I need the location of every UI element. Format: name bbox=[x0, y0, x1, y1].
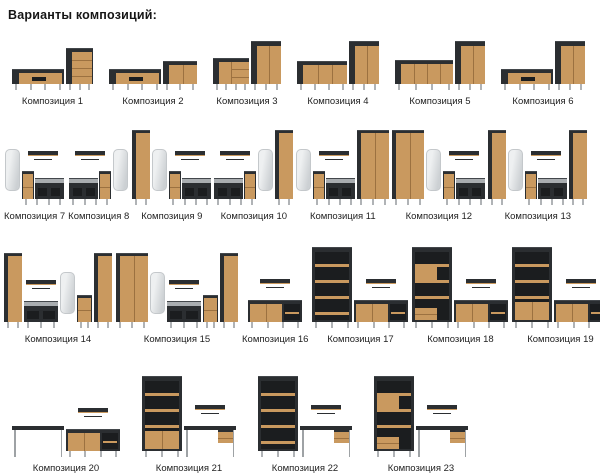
piece-dresser bbox=[66, 48, 93, 90]
furniture-legs bbox=[203, 322, 218, 328]
furniture-legs bbox=[349, 84, 379, 90]
piece-stack bbox=[214, 151, 256, 205]
piece-wall-shelf bbox=[449, 151, 479, 160]
composition-card: Композиция 11 bbox=[296, 117, 389, 222]
composition-preview bbox=[142, 357, 236, 457]
piece-sideboard-4door bbox=[395, 60, 453, 90]
piece-mirror bbox=[296, 149, 311, 191]
piece-wall-shelf bbox=[566, 279, 596, 288]
piece-hall-bench bbox=[313, 172, 355, 205]
furniture-legs bbox=[132, 199, 150, 205]
piece-wall-shelf bbox=[75, 151, 105, 160]
furniture-legs bbox=[258, 451, 298, 457]
furniture-legs bbox=[374, 451, 414, 457]
composition-label: Композиция 7 bbox=[4, 211, 65, 222]
composition-label: Композиция 14 bbox=[25, 334, 91, 345]
composition-card: Композиция 18 bbox=[412, 234, 508, 345]
composition-card: Композиция 15 bbox=[116, 234, 238, 345]
furniture-legs bbox=[116, 322, 148, 328]
composition-label: Композиция 3 bbox=[216, 96, 277, 107]
furniture-legs bbox=[354, 322, 408, 328]
piece-bookshelf-doors bbox=[142, 376, 182, 457]
piece-commode bbox=[213, 58, 249, 90]
composition-label: Композиция 12 bbox=[406, 211, 472, 222]
composition-preview bbox=[214, 117, 293, 205]
composition-card: Композиция 16 bbox=[242, 234, 308, 345]
piece-wall-shelf bbox=[366, 279, 396, 288]
piece-hall-bench bbox=[525, 172, 567, 205]
composition-card: Композиция 14 bbox=[4, 234, 112, 345]
composition-preview bbox=[312, 234, 408, 328]
composition-preview bbox=[116, 234, 238, 328]
composition-label: Композиция 4 bbox=[307, 96, 368, 107]
composition-label: Композиция 5 bbox=[409, 96, 470, 107]
composition-preview bbox=[374, 357, 468, 457]
composition-label: Композиция 17 bbox=[327, 334, 393, 345]
piece-stack bbox=[24, 280, 58, 328]
piece-sideboard-open bbox=[66, 429, 120, 457]
composition-card: Композиция 5 bbox=[395, 28, 485, 107]
composition-preview bbox=[12, 357, 120, 457]
composition-label: Композиция 20 bbox=[33, 463, 99, 474]
composition-card: Композиция 23 bbox=[374, 357, 468, 474]
furniture-legs bbox=[443, 199, 485, 205]
furniture-legs bbox=[512, 322, 552, 328]
composition-label: Композиция 16 bbox=[242, 334, 308, 345]
piece-hall-bench bbox=[69, 172, 111, 205]
piece-drawer-unit bbox=[203, 295, 218, 328]
composition-label: Композиция 21 bbox=[156, 463, 222, 474]
piece-stack bbox=[313, 151, 355, 205]
compositions-grid: Композиция 1Композиция 2Композиция 3Комп… bbox=[0, 22, 600, 474]
piece-mirror bbox=[60, 272, 75, 314]
furniture-legs bbox=[312, 322, 352, 328]
piece-wall-shelf bbox=[260, 279, 290, 288]
piece-wall-shelf bbox=[78, 408, 108, 417]
piece-sideboard-open bbox=[554, 300, 600, 328]
piece-stack bbox=[300, 405, 352, 457]
furniture-legs bbox=[77, 322, 92, 328]
furniture-legs bbox=[455, 84, 485, 90]
composition-preview bbox=[392, 117, 485, 205]
furniture-legs bbox=[275, 199, 293, 205]
piece-wall-shelf bbox=[195, 405, 225, 414]
furniture-legs bbox=[454, 322, 508, 328]
furniture-legs bbox=[248, 322, 302, 328]
piece-mirror bbox=[150, 272, 165, 314]
furniture-legs bbox=[395, 84, 453, 90]
piece-hall-bench bbox=[169, 172, 211, 205]
furniture-legs bbox=[22, 199, 64, 205]
furniture-legs bbox=[412, 322, 452, 328]
piece-desk-drawers bbox=[416, 426, 468, 457]
piece-sideboard-2door bbox=[163, 61, 197, 90]
piece-sideboard-open bbox=[454, 300, 508, 328]
composition-label: Композиция 18 bbox=[427, 334, 493, 345]
furniture-legs bbox=[525, 199, 567, 205]
piece-stack bbox=[169, 151, 211, 205]
composition-label: Композиция 1 bbox=[22, 96, 83, 107]
composition-card: Композиция 7 bbox=[4, 117, 65, 222]
piece-sideboard-open bbox=[354, 300, 408, 328]
composition-label: Композиция 9 bbox=[141, 211, 202, 222]
furniture-legs bbox=[24, 322, 58, 328]
composition-label: Композиция 8 bbox=[68, 211, 129, 222]
composition-preview bbox=[488, 117, 587, 205]
composition-preview bbox=[412, 234, 508, 328]
composition-preview bbox=[297, 28, 379, 90]
piece-sideboard-open bbox=[248, 300, 302, 328]
composition-label: Композиция 15 bbox=[144, 334, 210, 345]
piece-cabinet bbox=[455, 41, 485, 90]
piece-wall-shelf bbox=[169, 280, 199, 289]
furniture-legs bbox=[213, 84, 249, 90]
piece-tv-stand bbox=[12, 69, 64, 90]
piece-mirror bbox=[5, 149, 20, 191]
piece-wall-shelf bbox=[466, 279, 496, 288]
composition-preview bbox=[132, 117, 211, 205]
piece-wardrobe-2door bbox=[392, 130, 424, 205]
piece-wardrobe-narrow bbox=[569, 130, 587, 205]
piece-hall-bench bbox=[22, 172, 64, 205]
piece-wardrobe-narrow bbox=[275, 130, 293, 205]
compositions-row-2: Композиция 7Композиция 8Композиция 9Комп… bbox=[0, 107, 600, 222]
piece-sideboard-3door bbox=[297, 61, 347, 90]
composition-card: Композиция 21 bbox=[142, 357, 236, 474]
furniture-legs bbox=[66, 451, 120, 457]
composition-label: Композиция 19 bbox=[527, 334, 593, 345]
piece-wall-shelf bbox=[28, 151, 58, 160]
furniture-legs bbox=[357, 199, 389, 205]
composition-card: Композиция 6 bbox=[501, 28, 585, 107]
piece-cabinet bbox=[555, 41, 585, 90]
piece-stack bbox=[525, 151, 567, 205]
composition-preview bbox=[248, 234, 302, 328]
piece-bench bbox=[24, 301, 58, 328]
piece-bench bbox=[167, 301, 201, 328]
piece-wall-shelf bbox=[531, 151, 561, 160]
piece-bookshelf-mixed bbox=[374, 376, 414, 457]
compositions-row-4: Композиция 20Композиция 21Композиция 22К… bbox=[0, 345, 600, 474]
composition-card: Композиция 10 bbox=[214, 117, 293, 222]
furniture-legs bbox=[214, 199, 256, 205]
piece-stack bbox=[248, 279, 302, 328]
piece-desk-drawers bbox=[184, 426, 236, 457]
furniture-legs bbox=[569, 199, 587, 205]
piece-stack bbox=[22, 151, 64, 205]
composition-card: Композиция 4 bbox=[297, 28, 379, 107]
piece-wall-shelf bbox=[427, 405, 457, 414]
furniture-legs bbox=[297, 84, 347, 90]
composition-card: Композиция 9 bbox=[132, 117, 211, 222]
piece-hall-bench bbox=[443, 172, 485, 205]
composition-preview bbox=[69, 117, 128, 205]
piece-wall-shelf bbox=[220, 151, 250, 160]
piece-wardrobe-2door bbox=[357, 130, 389, 205]
piece-wall-shelf bbox=[26, 280, 56, 289]
piece-stack bbox=[454, 279, 508, 328]
furniture-legs bbox=[167, 322, 201, 328]
piece-wall-shelf bbox=[311, 405, 341, 414]
composition-label: Композиция 2 bbox=[122, 96, 183, 107]
furniture-legs bbox=[555, 84, 585, 90]
piece-mirror bbox=[508, 149, 523, 191]
piece-cabinet bbox=[251, 41, 281, 90]
composition-card: Композиция 8 bbox=[68, 117, 129, 222]
composition-preview bbox=[4, 234, 112, 328]
composition-preview bbox=[395, 28, 485, 90]
piece-wardrobe-narrow bbox=[220, 253, 238, 328]
composition-preview bbox=[501, 28, 585, 90]
piece-wall-shelf bbox=[175, 151, 205, 160]
furniture-legs bbox=[4, 322, 22, 328]
composition-card: Композиция 22 bbox=[258, 357, 352, 474]
furniture-legs bbox=[69, 199, 111, 205]
composition-label: Композиция 13 bbox=[505, 211, 571, 222]
furniture-legs bbox=[66, 84, 93, 90]
piece-hall-bench bbox=[214, 172, 256, 205]
compositions-row-1: Композиция 1Композиция 2Композиция 3Комп… bbox=[0, 22, 600, 107]
furniture-legs bbox=[169, 199, 211, 205]
piece-stack bbox=[416, 405, 468, 457]
piece-mirror bbox=[113, 149, 128, 191]
piece-bookshelf-doors bbox=[512, 247, 552, 328]
furniture-legs bbox=[163, 84, 197, 90]
composition-preview bbox=[5, 117, 64, 205]
piece-wardrobe-narrow bbox=[132, 130, 150, 205]
piece-tv-stand bbox=[501, 69, 553, 90]
piece-stack bbox=[69, 151, 111, 205]
composition-label: Композиция 22 bbox=[272, 463, 338, 474]
piece-stack bbox=[443, 151, 485, 205]
composition-card: Композиция 17 bbox=[312, 234, 408, 345]
piece-desk bbox=[12, 426, 64, 457]
composition-card: Композиция 13 bbox=[488, 117, 587, 222]
composition-preview bbox=[109, 28, 197, 90]
furniture-legs bbox=[220, 322, 238, 328]
composition-preview bbox=[296, 117, 389, 205]
piece-wardrobe-narrow bbox=[4, 253, 22, 328]
composition-card: Композиция 2 bbox=[109, 28, 197, 107]
piece-bookshelf-mixed bbox=[412, 247, 452, 328]
piece-tv-stand bbox=[109, 69, 161, 90]
furniture-legs bbox=[392, 199, 424, 205]
piece-bookshelf-open bbox=[258, 376, 298, 457]
furniture-legs bbox=[501, 84, 553, 90]
piece-mirror bbox=[152, 149, 167, 191]
piece-wardrobe-narrow bbox=[94, 253, 112, 328]
piece-wall-shelf bbox=[319, 151, 349, 160]
composition-card: Композиция 12 bbox=[392, 117, 485, 222]
furniture-legs bbox=[109, 84, 161, 90]
piece-mirror bbox=[426, 149, 441, 191]
furniture-legs bbox=[313, 199, 355, 205]
piece-stack bbox=[184, 405, 236, 457]
composition-card: Композиция 1 bbox=[12, 28, 93, 107]
composition-preview bbox=[512, 234, 600, 328]
piece-stack bbox=[554, 279, 600, 328]
composition-label: Композиция 10 bbox=[221, 211, 287, 222]
furniture-legs bbox=[142, 451, 182, 457]
furniture-legs bbox=[554, 322, 600, 328]
composition-preview bbox=[258, 357, 352, 457]
piece-bookshelf-open bbox=[312, 247, 352, 328]
piece-stack bbox=[167, 280, 201, 328]
furniture-legs bbox=[94, 322, 112, 328]
piece-cabinet bbox=[349, 41, 379, 90]
piece-mirror bbox=[258, 149, 273, 191]
furniture-legs bbox=[251, 84, 281, 90]
composition-label: Композиция 6 bbox=[512, 96, 573, 107]
piece-desk-drawers bbox=[300, 426, 352, 457]
composition-card: Композиция 20 bbox=[12, 357, 120, 474]
composition-label: Композиция 11 bbox=[310, 211, 376, 222]
page-title: Варианты композиций: bbox=[0, 0, 600, 22]
piece-wardrobe-narrow bbox=[488, 130, 506, 205]
composition-card: Композиция 3 bbox=[213, 28, 281, 107]
piece-wardrobe-2door bbox=[116, 253, 148, 328]
composition-preview bbox=[12, 28, 93, 90]
composition-preview bbox=[213, 28, 281, 90]
compositions-row-3: Композиция 14Композиция 15Композиция 16К… bbox=[0, 222, 600, 345]
furniture-legs bbox=[12, 84, 64, 90]
composition-label: Композиция 23 bbox=[388, 463, 454, 474]
piece-drawer-unit bbox=[77, 295, 92, 328]
piece-stack bbox=[354, 279, 408, 328]
furniture-legs bbox=[488, 199, 506, 205]
composition-card: Композиция 19 bbox=[512, 234, 600, 345]
